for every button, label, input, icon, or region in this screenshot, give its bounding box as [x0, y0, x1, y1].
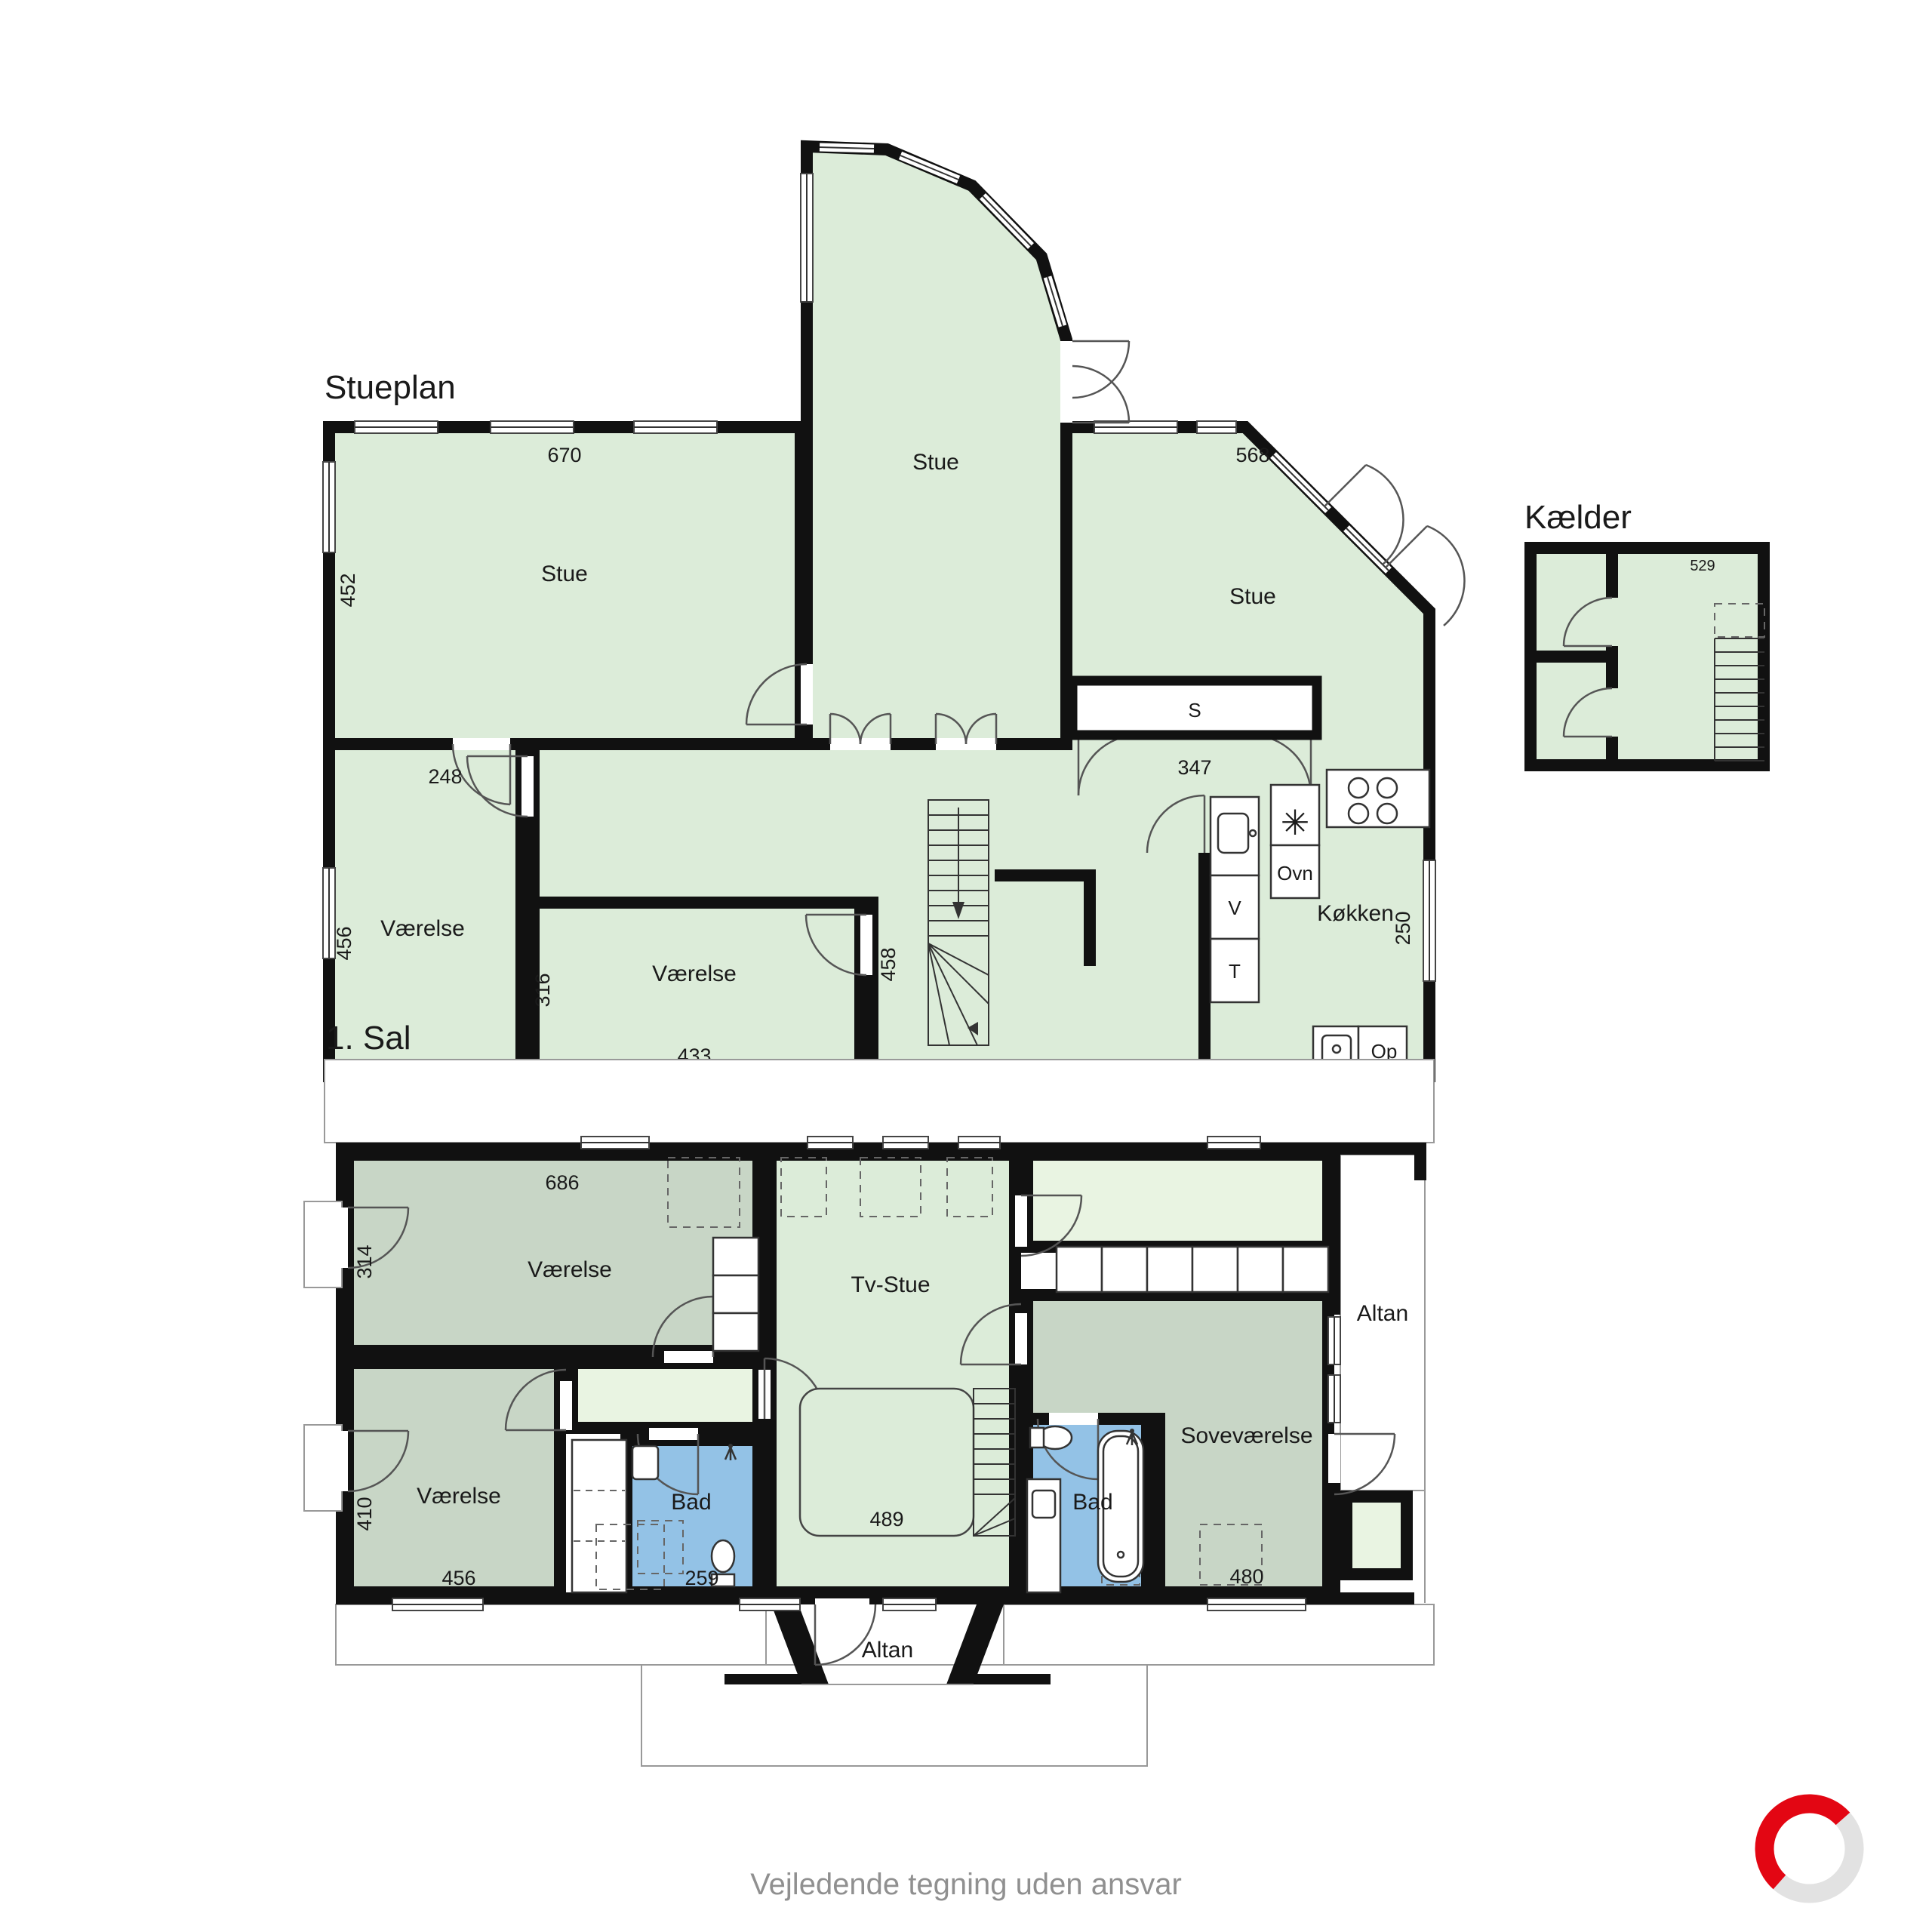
sink-icon [632, 1446, 658, 1479]
room-label-stue-left: Stue [541, 561, 588, 586]
dim-452: 452 [337, 573, 359, 607]
sal-hall [572, 1363, 758, 1428]
room-label-vaerelse-top: Værelse [528, 1257, 612, 1282]
dim-316: 316 [531, 973, 554, 1007]
room-label-bad-left: Bad [671, 1490, 711, 1515]
kaelder-title: Kælder [1524, 499, 1632, 536]
footer-disclaimer: Vejledende tegning uden ansvar [750, 1868, 1182, 1901]
dim-410: 410 [353, 1497, 376, 1531]
unit-label-ovn: Ovn [1277, 862, 1313, 884]
room-label-stue-middle: Stue [912, 450, 959, 475]
sal-room-vaerelse-bottom [348, 1363, 560, 1592]
dim-250: 250 [1392, 911, 1414, 945]
dim-347: 347 [1177, 756, 1211, 779]
room-label-altan-bottom: Altan [862, 1638, 913, 1663]
dim-314: 314 [353, 1244, 376, 1278]
room-label-stue-right: Stue [1229, 584, 1276, 609]
room-label-tv-stue: Tv-Stue [851, 1272, 930, 1297]
dim-456: 456 [441, 1567, 475, 1589]
kaelder-floorplan: Kælder 529 [1524, 499, 1764, 765]
room-label-vaerelse-left: Værelse [380, 916, 465, 941]
room-label-sovevaerelse: Soveværelse [1180, 1423, 1312, 1448]
dim-456: 456 [333, 926, 355, 960]
stueplan-room-stue-middle [807, 146, 1066, 744]
sal-landing [1027, 1155, 1328, 1247]
kitchen-sink-icon [1218, 814, 1248, 853]
dim-259: 259 [685, 1567, 718, 1589]
room-label-bad-right: Bad [1072, 1490, 1112, 1515]
room-label-altan-right: Altan [1357, 1301, 1408, 1326]
logo-red-arc [1764, 1804, 1843, 1882]
dim-458: 458 [877, 947, 900, 981]
floorplan-canvas: Stueplan [0, 0, 1932, 1932]
dim-489: 489 [869, 1508, 903, 1531]
closet-label-s: S [1188, 699, 1201, 721]
dim-480: 480 [1229, 1565, 1263, 1588]
room-label-vaerelse-bottom: Værelse [417, 1484, 501, 1509]
sal-room-small-bottom-right [1346, 1497, 1407, 1574]
stueplan-title: Stueplan [325, 369, 456, 406]
dim-686: 686 [545, 1171, 579, 1194]
dim-568: 568 [1235, 444, 1269, 466]
cooktop-symbol-icon: ✳ [1281, 803, 1310, 842]
sal-title: 1. Sal [326, 1020, 411, 1057]
dim-248: 248 [428, 765, 462, 788]
dim-670: 670 [547, 444, 581, 466]
logo-gray-arc [1780, 1819, 1854, 1894]
sal-floorplan: 1. Sal [304, 1020, 1434, 1766]
room-label-koekken: Køkken [1317, 901, 1394, 926]
unit-label-v: V [1228, 897, 1241, 919]
room-label-vaerelse-mid: Værelse [652, 961, 737, 986]
brand-logo [1764, 1804, 1854, 1894]
dim-529: 529 [1690, 558, 1715, 574]
unit-label-t: T [1229, 960, 1241, 983]
